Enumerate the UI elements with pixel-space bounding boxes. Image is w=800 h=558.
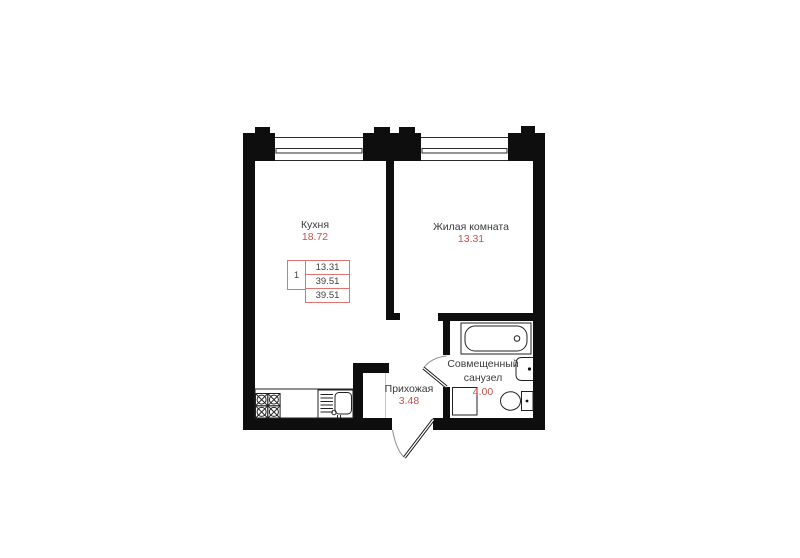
entrance-door [393, 420, 434, 458]
hallway-name: Прихожая [385, 383, 434, 395]
apartment-stamp: 1 13.31 39.51 39.51 [287, 260, 350, 303]
stamp-living-area: 13.31 [305, 260, 350, 275]
hallway-area: 3.48 [385, 395, 434, 407]
living-room-label: Жилая комната 13.31 [433, 221, 509, 245]
window-kitchen [275, 138, 363, 161]
window-living-room [421, 138, 508, 161]
bathroom-area: 4.00 [447, 385, 518, 399]
bathroom-name-line2: санузел [447, 371, 518, 385]
stamp-values: 13.31 39.51 39.51 [305, 260, 350, 303]
living-room-name: Жилая комната [433, 221, 509, 233]
stove-symbol [256, 394, 281, 419]
kitchen-label: Кухня 18.72 [301, 219, 329, 243]
stamp-rooms-count: 1 [287, 260, 306, 290]
living-room-area: 13.31 [433, 233, 509, 245]
floor-plan-drawing [0, 0, 800, 558]
bathroom-label: Совмещенный санузел 4.00 [447, 357, 518, 399]
bathtub-symbol [461, 323, 531, 354]
bathroom-name-line1: Совмещенный [447, 357, 518, 371]
stamp-total-area: 39.51 [305, 288, 350, 303]
floor-plan-canvas: Кухня 18.72 Жилая комната 13.31 Прихожая… [0, 0, 800, 558]
kitchen-name: Кухня [301, 219, 329, 231]
stamp-area: 39.51 [305, 274, 350, 289]
hallway-label: Прихожая 3.48 [385, 383, 434, 407]
kitchen-area: 18.72 [301, 231, 329, 243]
